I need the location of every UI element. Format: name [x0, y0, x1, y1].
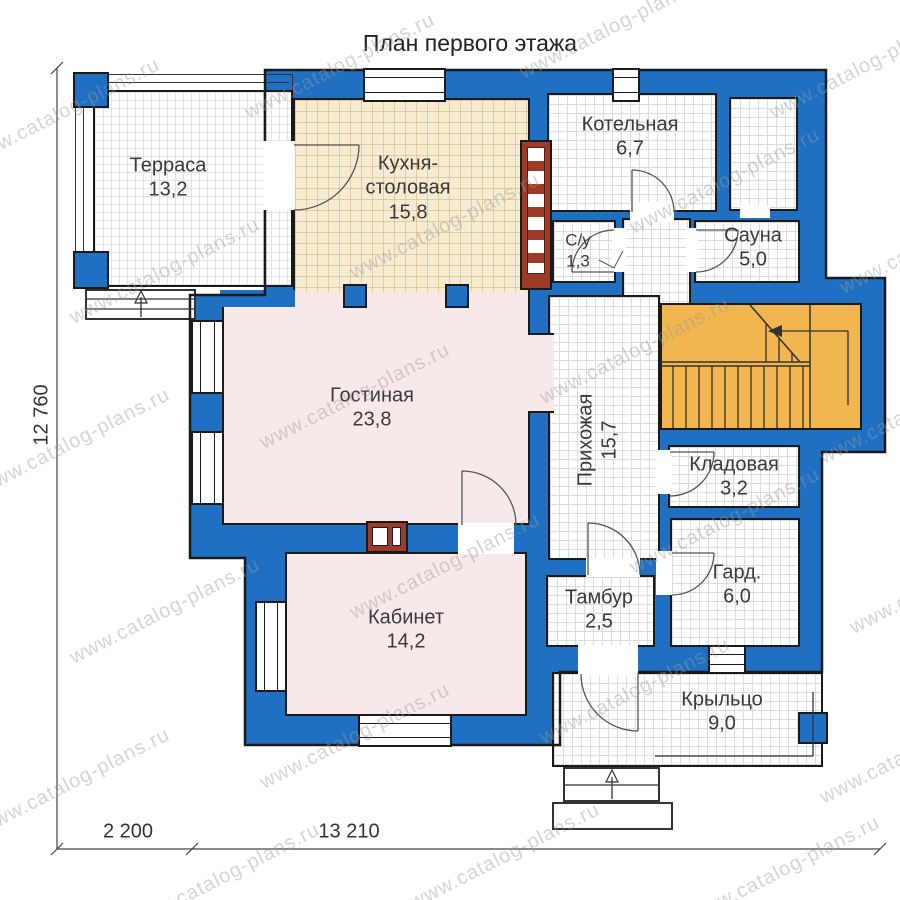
- window-boiler-top: [612, 68, 640, 102]
- terrace-post-bottom: [73, 251, 109, 289]
- shower-room-floor: [729, 97, 798, 211]
- door-opening-wc: [612, 228, 626, 272]
- pillar-stub-left: [343, 284, 367, 308]
- watermark: www.catalog-plans.ru: [846, 524, 900, 640]
- door-opening-shower: [740, 205, 770, 218]
- room-label-hallway: Прихожая 15,7: [574, 394, 623, 487]
- room-label-sauna: Сауна 5,0: [724, 224, 782, 273]
- chimney-block: [520, 140, 552, 290]
- window-kitchen-top: [363, 68, 446, 102]
- hall-north-corridor-floor: [622, 218, 691, 306]
- porch-step-slab: [552, 802, 673, 830]
- porch-steps: [563, 767, 660, 802]
- watermark: www.catalog-plans.ru: [0, 384, 174, 500]
- door-opening-sauna: [686, 228, 698, 272]
- room-label-porch: Крыльцо 9,0: [681, 688, 763, 737]
- terrace-post-top: [73, 72, 109, 108]
- terrace-steps: [85, 289, 196, 320]
- pillar-stub-right: [445, 284, 469, 308]
- dimension-bottom-porch: 2 200: [103, 821, 153, 844]
- window-study-bottom: [358, 714, 452, 747]
- door-opening-boiler: [630, 202, 674, 222]
- fireplace-firebox: [372, 527, 388, 546]
- dimension-bottom-main: 13 210: [318, 821, 379, 844]
- room-label-study: Кабинет 14,2: [368, 606, 444, 655]
- room-label-kitchen: Кухня-столовая 15,8: [342, 151, 474, 224]
- living-kitchen-wall-stub: [220, 290, 295, 307]
- watermark: www.catalog-plans.ru: [816, 694, 900, 810]
- room-label-wardrobe: Гард. 6,0: [713, 561, 762, 610]
- living-hallway-passage: [528, 333, 554, 413]
- window-living-left-2: [191, 431, 224, 505]
- room-label-living: Гостиная 23,8: [330, 384, 414, 433]
- room-label-boiler: Котельная 6,7: [582, 113, 679, 162]
- room-label-terrace: Терраса 13,2: [130, 154, 207, 203]
- room-label-storage: Кладовая 3,2: [689, 453, 779, 502]
- page-title: План первого этажа: [250, 30, 690, 57]
- watermark: www.catalog-plans.ru: [66, 554, 264, 670]
- door-opening-vestibule: [586, 558, 640, 577]
- door-opening-wardrobe: [656, 551, 672, 595]
- dimension-left: 12 760: [31, 384, 54, 445]
- door-opening-porch: [578, 645, 638, 676]
- room-label-vestibule: Тамбур 2,5: [565, 586, 633, 635]
- window-wardrobe-porch: [708, 645, 746, 674]
- room-label-wc: С/у 1,3: [565, 230, 591, 271]
- door-opening-terrace-kitchen: [263, 141, 295, 210]
- watermark: www.catalog-plans.ru: [686, 812, 884, 900]
- floor-plan-canvas: План первого этажа Терраса 13,2 Кухня-ст…: [0, 0, 900, 900]
- chimney-vent-slots: [527, 147, 545, 274]
- stairs-block: [660, 303, 862, 430]
- fireplace-vent: [392, 527, 401, 546]
- window-living-left-1: [191, 320, 224, 394]
- door-opening-storage: [656, 450, 672, 494]
- window-study-left: [255, 601, 287, 692]
- door-opening-study: [458, 523, 514, 554]
- watermark: www.catalog-plans.ru: [126, 819, 324, 900]
- fireplace: [366, 521, 408, 553]
- porch-pillar: [798, 712, 828, 744]
